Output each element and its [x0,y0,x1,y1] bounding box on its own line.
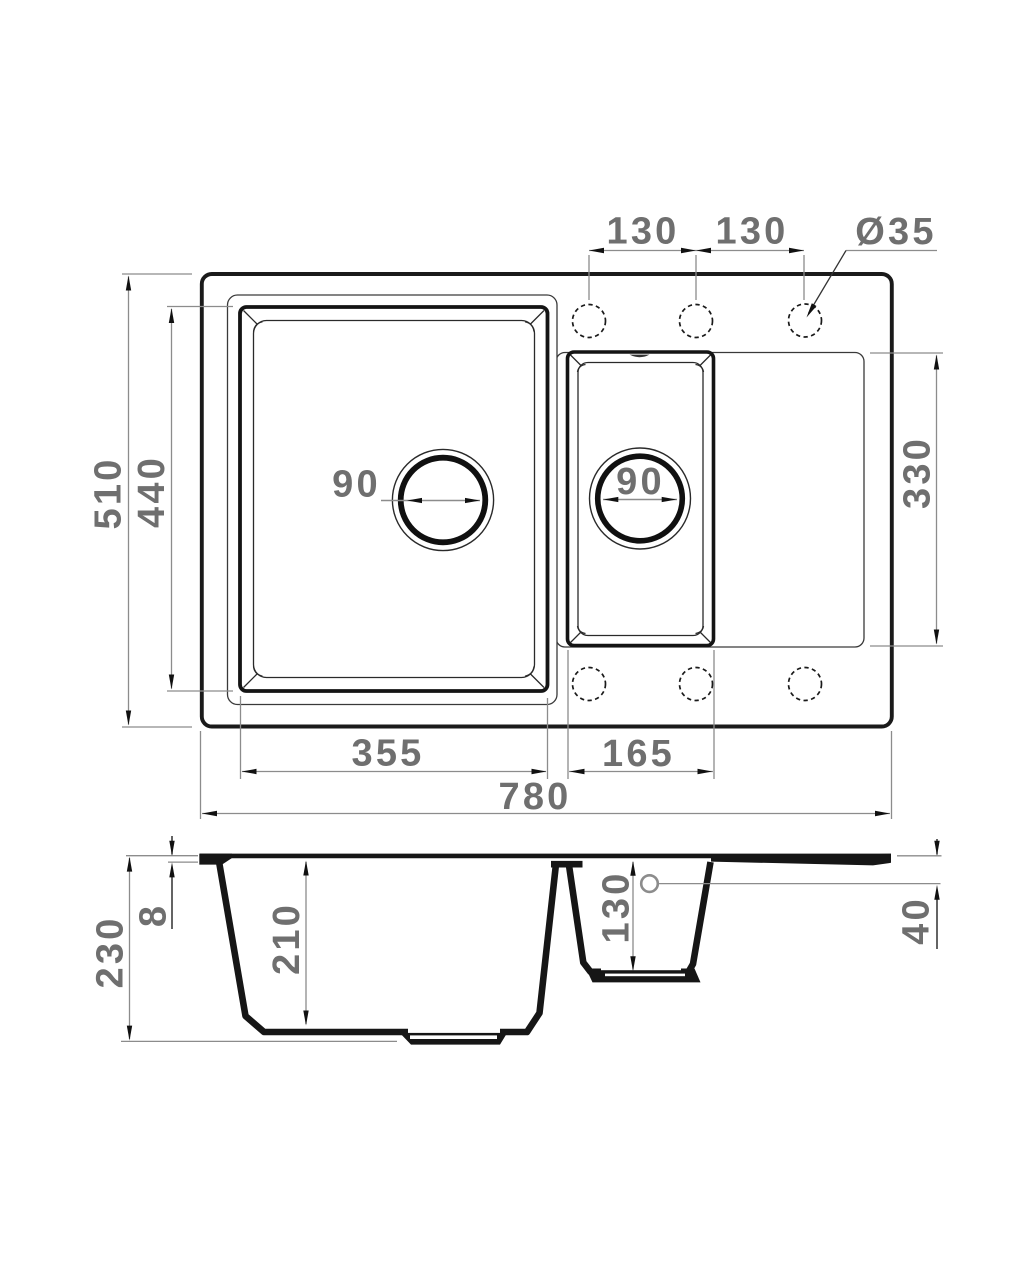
svg-text:780: 780 [498,776,571,818]
svg-text:40: 40 [896,896,938,945]
svg-text:210: 210 [266,902,308,975]
svg-text:440: 440 [131,455,173,528]
svg-text:130: 130 [606,211,679,253]
svg-text:165: 165 [602,733,675,775]
svg-text:230: 230 [90,915,132,988]
svg-text:90: 90 [616,461,665,503]
svg-text:510: 510 [87,456,129,529]
svg-text:Ø35: Ø35 [855,211,936,253]
svg-text:330: 330 [896,436,938,509]
svg-text:130: 130 [596,870,638,943]
svg-text:355: 355 [351,733,424,775]
svg-text:130: 130 [715,211,788,253]
svg-text:8: 8 [133,903,175,927]
svg-text:90: 90 [332,464,381,506]
